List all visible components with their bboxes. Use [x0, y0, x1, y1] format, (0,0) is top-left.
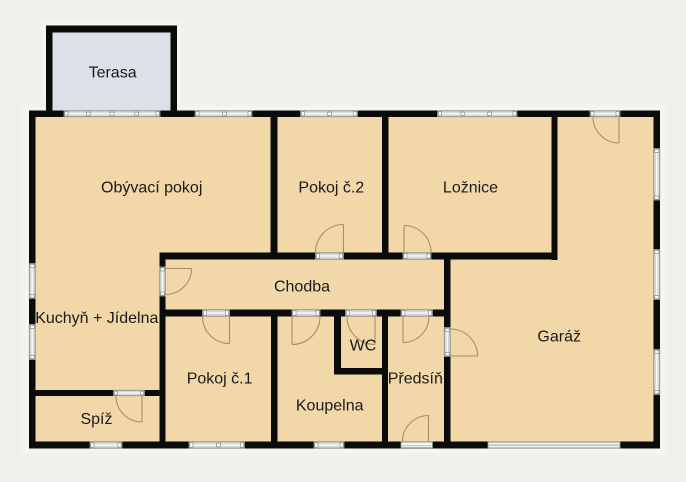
svg-text:Koupelna: Koupelna — [296, 398, 364, 415]
svg-text:WC: WC — [350, 338, 377, 355]
svg-text:Pokoj č.1: Pokoj č.1 — [187, 371, 253, 388]
svg-text:Chodba: Chodba — [274, 279, 330, 296]
svg-text:Ložnice: Ložnice — [443, 180, 498, 197]
svg-text:Garáž: Garáž — [537, 329, 581, 346]
svg-text:Spíž: Spíž — [80, 411, 112, 428]
svg-text:Obývací pokoj: Obývací pokoj — [101, 179, 202, 196]
svg-text:Předsíň: Předsíň — [388, 371, 443, 388]
svg-text:Terasa: Terasa — [89, 65, 137, 82]
svg-text:Pokoj č.2: Pokoj č.2 — [298, 180, 364, 197]
svg-text:Kuchyň + Jídelna: Kuchyň + Jídelna — [35, 310, 158, 327]
